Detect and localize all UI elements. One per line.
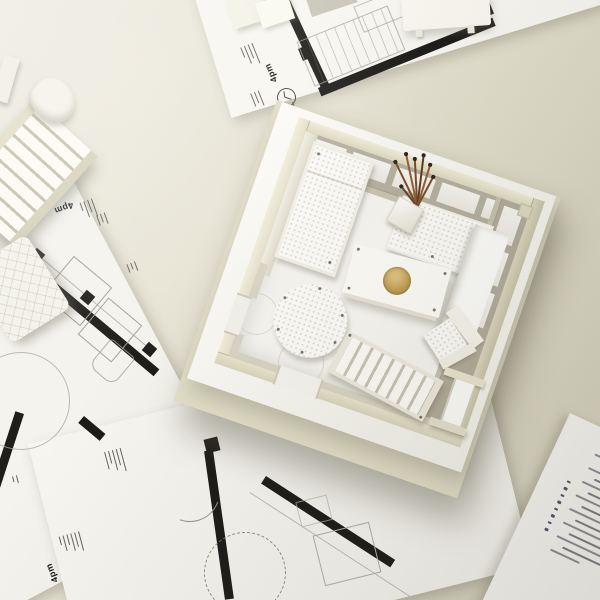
text-line <box>126 264 130 273</box>
text-line <box>547 521 552 525</box>
draped-cloth <box>23 70 84 131</box>
text-line <box>544 528 549 532</box>
pin <box>340 313 344 317</box>
pin <box>300 350 304 354</box>
pin <box>328 261 332 265</box>
pin <box>432 308 436 312</box>
pin <box>317 152 321 156</box>
pin <box>276 327 280 331</box>
pin <box>283 296 287 300</box>
text-line <box>103 212 108 224</box>
text-line <box>563 487 568 491</box>
pin <box>443 272 447 276</box>
text-line <box>100 214 104 223</box>
pin <box>333 341 337 345</box>
pin <box>348 333 352 337</box>
pin <box>357 247 361 251</box>
text-line <box>130 263 134 270</box>
sofa-leg <box>467 25 475 33</box>
document-text-block <box>548 453 600 600</box>
text-line <box>58 536 62 545</box>
pin <box>430 255 434 259</box>
text-line <box>557 501 562 505</box>
sofa-leg <box>415 29 423 37</box>
text-line <box>560 494 565 498</box>
text-line <box>66 534 70 545</box>
text-line <box>554 507 559 511</box>
gold-doily <box>380 264 414 298</box>
foam-slab <box>0 55 20 104</box>
text-line <box>550 549 580 564</box>
text-line <box>551 514 556 518</box>
annotation-text-block <box>93 212 108 227</box>
pin <box>347 286 351 290</box>
cushion-seam <box>307 170 362 191</box>
photo-scene: 4pm 4pm 4pm <box>0 0 600 600</box>
text-line <box>566 480 571 484</box>
pin <box>419 415 423 419</box>
text-line <box>12 476 15 482</box>
annotation-text-block <box>124 261 139 274</box>
text-line <box>79 202 83 211</box>
text-line <box>134 261 139 271</box>
pin <box>318 287 322 291</box>
